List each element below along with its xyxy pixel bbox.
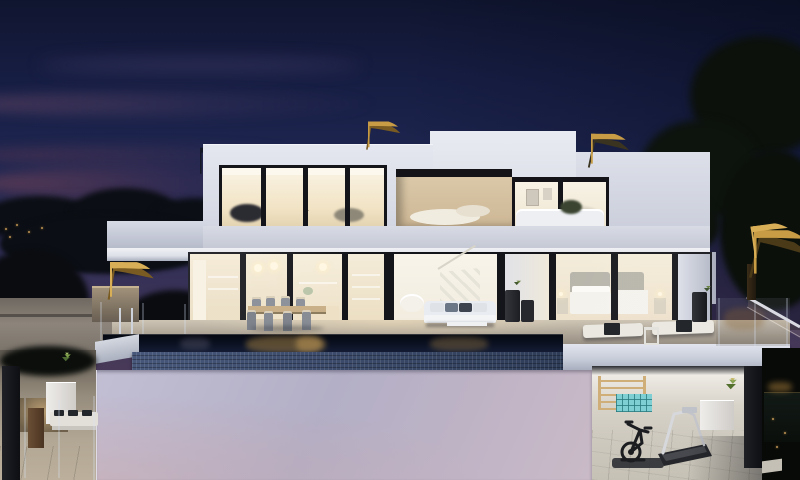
distant-light <box>28 231 30 233</box>
glass-fence-post <box>184 304 186 338</box>
roof-palm-right <box>548 96 634 182</box>
banana-plant <box>30 328 94 386</box>
upper-terrace-plant <box>560 200 582 214</box>
pool-tile-band <box>132 352 563 372</box>
pool-reflection <box>180 338 210 350</box>
lower-left-column <box>2 366 20 480</box>
pool-reflection <box>430 337 488 351</box>
plant-pot <box>521 300 534 322</box>
side-table <box>644 327 659 345</box>
coffee-table <box>447 322 487 326</box>
distant-light <box>9 236 11 238</box>
distant-light <box>16 224 18 226</box>
planter-palm <box>58 218 162 314</box>
cloud-streak <box>40 58 360 72</box>
distant-light <box>5 228 7 230</box>
upper-terrace-recess <box>396 169 512 226</box>
upper-terrace-sofa <box>516 209 604 226</box>
exercise-bike <box>618 410 658 464</box>
lower-wall <box>95 370 592 480</box>
gym-column <box>744 366 762 468</box>
distant-light <box>41 227 43 229</box>
roof-palm-left <box>330 88 406 164</box>
villa-dusk-render <box>0 0 800 480</box>
plant-pot <box>692 292 707 322</box>
plant-pot <box>505 290 520 322</box>
right-garden-dark <box>762 348 800 480</box>
terrace-step <box>0 314 96 317</box>
upper-lounge-window <box>219 165 387 226</box>
right-palm <box>692 178 800 294</box>
glass-fence-post <box>100 302 102 340</box>
pool-reflection <box>296 336 322 352</box>
